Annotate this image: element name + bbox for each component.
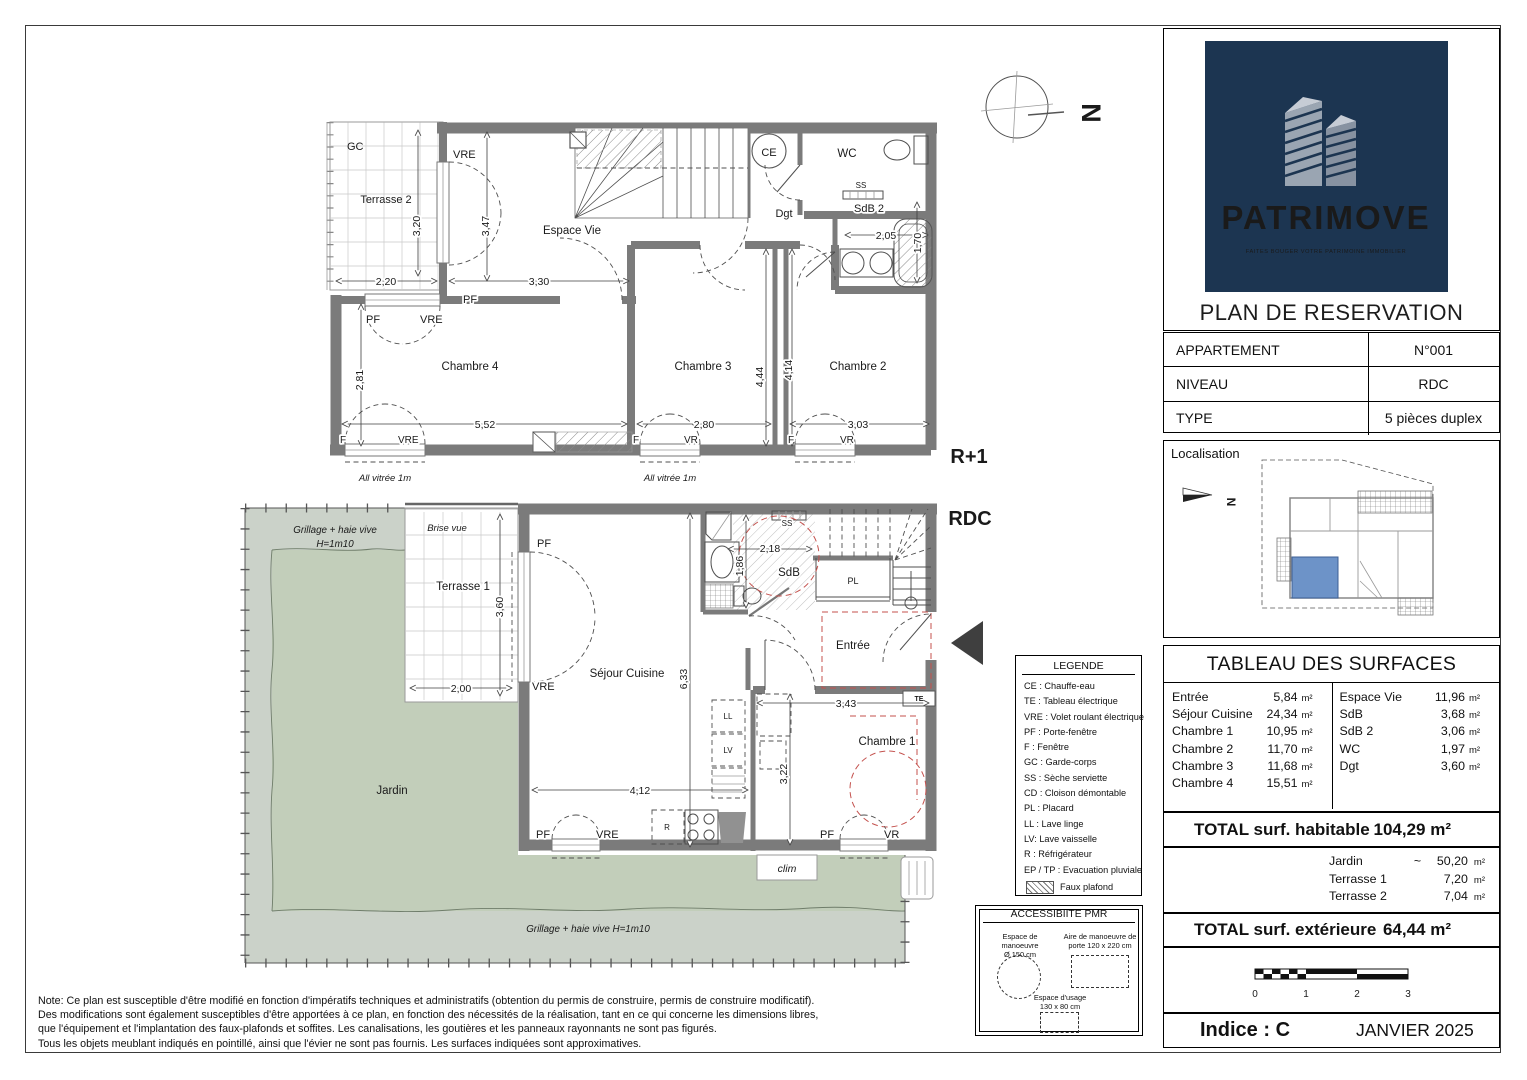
svg-text:2,80: 2,80 xyxy=(694,419,715,431)
svg-text:Entrée: Entrée xyxy=(836,640,870,652)
surface-value: 24,34 xyxy=(1256,707,1298,721)
surface-row: Dgt 3,60 m² xyxy=(1340,759,1492,776)
svg-text:VRE: VRE xyxy=(596,829,619,841)
exterior-name: Jardin xyxy=(1329,854,1414,868)
indice-box: Indice : C JANVIER 2025 xyxy=(1163,1013,1500,1048)
info-label: TYPE xyxy=(1164,410,1213,426)
legend-item: PF : Porte-fenêtre xyxy=(1024,725,1141,740)
notes: Note: Ce plan est susceptible d'être mod… xyxy=(38,994,838,1051)
svg-text:F: F xyxy=(340,435,346,446)
surface-row: SdB 2 3,06 m² xyxy=(1340,724,1492,741)
pmr-line: Espace de manoeuvre xyxy=(984,932,1056,950)
surface-unit: m² xyxy=(1298,727,1324,738)
date-label: JANVIER 2025 xyxy=(1356,1020,1474,1041)
surface-unit: m² xyxy=(1298,693,1324,704)
surface-row: Séjour Cuisine 24,34 m² xyxy=(1172,707,1324,724)
svg-text:PF: PF xyxy=(537,538,551,550)
plan-rdc: Grillage + haie viveH=1m10Brise vueTerra… xyxy=(245,504,992,963)
surfaces-box: TABLEAU DES SURFACES Entrée 5,84 m² Séjo… xyxy=(1163,645,1500,812)
svg-text:CE: CE xyxy=(761,147,776,159)
svg-text:R: R xyxy=(664,823,670,832)
legend-box: LEGENDE CE : Chauffe-eau TE : Tableau él… xyxy=(1015,655,1142,896)
patrimove-logo: PATRIMOVE FAITES BOUGER VOTRE PATRIMOINE… xyxy=(1205,41,1448,292)
surface-unit: m² xyxy=(1298,779,1324,790)
svg-text:VRE: VRE xyxy=(398,435,419,446)
r1-faux-plafond xyxy=(533,432,632,452)
north-arrow-icon xyxy=(1183,488,1212,495)
surface-value: 3,68 xyxy=(1423,707,1465,721)
svg-text:N: N xyxy=(1224,498,1238,507)
total-exterior-value: 64,44 m² xyxy=(1383,920,1499,940)
svg-text:Espace Vie: Espace Vie xyxy=(543,225,601,237)
svg-text:2,81: 2,81 xyxy=(354,370,366,391)
svg-text:SS: SS xyxy=(782,519,793,528)
surface-value: 1,97 xyxy=(1423,742,1465,756)
legend-item: TE : Tableau électrique xyxy=(1024,694,1141,709)
exterior-row: Jardin ~ 50,20 m² xyxy=(1329,854,1499,872)
svg-text:3: 3 xyxy=(1405,989,1411,1000)
pmr-line: 130 x 80 cm xyxy=(1022,1002,1098,1011)
svg-text:Chambre 3: Chambre 3 xyxy=(675,361,732,373)
svg-text:RDC: RDC xyxy=(948,508,991,530)
svg-text:SS: SS xyxy=(856,181,867,190)
svg-text:Terrasse 1: Terrasse 1 xyxy=(436,581,490,593)
exterior-name: Terrasse 1 xyxy=(1329,872,1414,886)
svg-text:Terrasse 2: Terrasse 2 xyxy=(360,194,411,206)
surface-unit: m² xyxy=(1465,710,1491,721)
svg-text:Dgt: Dgt xyxy=(775,208,792,220)
surface-value: 11,68 xyxy=(1256,759,1298,773)
legend-item: PL : Placard xyxy=(1024,801,1141,816)
surface-unit: m² xyxy=(1465,693,1491,704)
svg-text:clim: clim xyxy=(778,863,797,875)
svg-text:VR: VR xyxy=(840,435,854,446)
total-habitable-box: TOTAL surf. habitable 104,29 m² xyxy=(1163,812,1500,847)
info-row: APPARTEMENT N°001 xyxy=(1164,333,1499,367)
compass-label: N xyxy=(1076,103,1106,123)
surface-name: Séjour Cuisine xyxy=(1172,707,1256,721)
svg-text:0: 0 xyxy=(1252,989,1258,1000)
svg-text:F: F xyxy=(633,435,639,446)
pmr-box: ACCESSIBIITE PMR Espace de manoeuvre Ø 1… xyxy=(975,905,1143,1036)
svg-text:1,70: 1,70 xyxy=(912,233,924,254)
legend-item: CD : Cloison démontable xyxy=(1024,786,1141,801)
surface-row: WC 1,97 m² xyxy=(1340,742,1492,759)
plan-r1: GCTerrasse 23,202,20VRE3,47Espace Vie3,3… xyxy=(327,122,988,484)
surface-name: Dgt xyxy=(1340,759,1424,773)
svg-text:PL: PL xyxy=(847,576,858,586)
logo-brand-text: PATRIMOVE xyxy=(1221,199,1430,236)
surface-name: Chambre 3 xyxy=(1172,759,1256,773)
exterior-unit: m² xyxy=(1468,857,1499,868)
note-line: que l'équipement et l'implantation des f… xyxy=(38,1022,838,1036)
svg-text:1,86: 1,86 xyxy=(734,556,746,577)
plan-title: PLAN DE RESERVATION xyxy=(1164,300,1499,326)
legend-item: LV: Lave vaisselle xyxy=(1024,832,1141,847)
r1-terrasse2 xyxy=(327,122,443,290)
towel-warmer-icon xyxy=(843,191,883,199)
svg-text:Grillage + haie vive H=1m10: Grillage + haie vive H=1m10 xyxy=(526,924,650,935)
total-habitable-label: TOTAL surf. habitable xyxy=(1164,820,1370,840)
pmr-text-usage: Espace d'usage 130 x 80 cm xyxy=(1022,993,1098,1011)
info-value: RDC xyxy=(1368,367,1498,400)
svg-text:3,43: 3,43 xyxy=(836,698,857,710)
surface-unit: m² xyxy=(1465,727,1491,738)
svg-text:3,60: 3,60 xyxy=(494,597,506,618)
pmr-line: porte 120 x 220 cm xyxy=(1062,941,1138,950)
surface-name: Espace Vie xyxy=(1340,690,1424,704)
pmr-text-porte: Aire de manoeuvre de porte 120 x 220 cm xyxy=(1062,932,1138,950)
sink-icon xyxy=(842,252,864,274)
surface-row: Chambre 1 10,95 m² xyxy=(1172,724,1324,741)
svg-text:3,30: 3,30 xyxy=(529,276,550,288)
svg-text:VR: VR xyxy=(684,435,698,446)
surface-value: 11,70 xyxy=(1256,742,1298,756)
note-line: Note: Ce plan est susceptible d'être mod… xyxy=(38,994,838,1008)
svg-text:4,12: 4,12 xyxy=(630,785,651,797)
localisation-north-label: N xyxy=(1224,498,1238,507)
surface-row: Chambre 2 11,70 m² xyxy=(1172,742,1324,759)
pmr-line: Espace d'usage xyxy=(1022,993,1098,1002)
localisation-map: N xyxy=(1164,441,1498,636)
total-exterior-box: TOTAL surf. extérieure 64,44 m² xyxy=(1163,913,1500,947)
svg-text:4,44: 4,44 xyxy=(754,367,766,388)
svg-text:Séjour Cuisine: Séjour Cuisine xyxy=(590,668,665,680)
exterior-row: Terrasse 1 7,20 m² xyxy=(1329,872,1499,890)
surface-row: Entrée 5,84 m² xyxy=(1172,690,1324,707)
svg-text:2,20: 2,20 xyxy=(376,276,397,288)
legend-item: F : Fenêtre xyxy=(1024,740,1141,755)
surface-row: Chambre 4 15,51 m² xyxy=(1172,776,1324,793)
surface-value: 10,95 xyxy=(1256,724,1298,738)
svg-text:5,52: 5,52 xyxy=(475,419,496,431)
surface-unit: m² xyxy=(1298,762,1324,773)
svg-text:VRE: VRE xyxy=(420,314,443,326)
plan-sheet: .w{stroke:#7b7b7b;stroke-width:11;fill:n… xyxy=(0,0,1527,1080)
svg-text:3,20: 3,20 xyxy=(411,216,423,237)
surface-value: 3,06 xyxy=(1423,724,1465,738)
legend-item: GC : Garde-corps xyxy=(1024,755,1141,770)
svg-text:R+1: R+1 xyxy=(950,446,987,468)
scale-bar: 0123 xyxy=(1164,948,1498,1011)
total-exterior-label: TOTAL surf. extérieure xyxy=(1164,920,1376,940)
svg-text:LL: LL xyxy=(724,712,733,721)
svg-text:Chambre 2: Chambre 2 xyxy=(830,361,887,373)
svg-text:TE: TE xyxy=(915,696,924,703)
surface-name: SdB xyxy=(1340,707,1424,721)
surface-name: Entrée xyxy=(1172,690,1256,704)
surfaces-right-col: Espace Vie 11,96 m² SdB 3,68 m² SdB 2 3,… xyxy=(1332,683,1500,809)
svg-text:3,22: 3,22 xyxy=(778,764,790,785)
surface-row: Chambre 3 11,68 m² xyxy=(1172,759,1324,776)
svg-text:Brise vue: Brise vue xyxy=(427,523,467,534)
legend-item: R : Réfrigérateur xyxy=(1024,847,1141,862)
svg-text:LV: LV xyxy=(723,746,733,755)
surface-value: 5,84 xyxy=(1256,690,1298,704)
sink-icon xyxy=(870,252,892,274)
legend-item: VRE : Volet roulant électrique xyxy=(1024,710,1141,725)
svg-text:WC: WC xyxy=(837,148,856,160)
svg-text:VRE: VRE xyxy=(453,149,476,161)
legend-item: LL : Lave linge xyxy=(1024,817,1141,832)
svg-text:3,03: 3,03 xyxy=(848,419,869,431)
svg-text:6,33: 6,33 xyxy=(678,669,690,690)
info-label: APPARTEMENT xyxy=(1164,342,1280,358)
hatch-swatch-icon xyxy=(1026,881,1054,894)
pmr-line: Aire de manoeuvre de xyxy=(1062,932,1138,941)
svg-text:Chambre 1: Chambre 1 xyxy=(859,736,916,748)
pmr-rect-icon xyxy=(1071,955,1129,988)
surface-unit: m² xyxy=(1298,745,1324,756)
info-value: N°001 xyxy=(1368,333,1498,366)
exterior-unit: m² xyxy=(1468,875,1499,886)
exterior-surfaces-box: Jardin ~ 50,20 m² Terrasse 1 7,20 m² Ter… xyxy=(1163,847,1500,913)
svg-text:Chambre 4: Chambre 4 xyxy=(442,361,499,373)
svg-text:SdB: SdB xyxy=(778,567,800,579)
svg-text:PF: PF xyxy=(366,314,380,326)
exterior-name: Terrasse 2 xyxy=(1329,889,1414,903)
r1-stairs xyxy=(570,128,748,218)
surface-name: SdB 2 xyxy=(1340,724,1424,738)
surfaces-left-col: Entrée 5,84 m² Séjour Cuisine 24,34 m² C… xyxy=(1164,683,1332,809)
localisation-title: Localisation xyxy=(1171,446,1240,461)
svg-text:N: N xyxy=(1076,103,1106,123)
total-habitable-value: 104,29 m² xyxy=(1374,820,1500,840)
svg-text:VR: VR xyxy=(884,829,899,841)
svg-text:4,14: 4,14 xyxy=(783,360,795,381)
pmr-title: ACCESSIBIITE PMR xyxy=(983,909,1135,923)
approx-tilde: ~ xyxy=(1414,854,1429,868)
note-line: Tous les objets meublant indiqués en poi… xyxy=(38,1037,838,1051)
logo-buildings-icon: PATRIMOVE FAITES BOUGER VOTRE PATRIMOINE… xyxy=(1205,41,1448,292)
surface-name: Chambre 1 xyxy=(1172,724,1256,738)
svg-text:F: F xyxy=(788,435,794,446)
svg-text:Jardin: Jardin xyxy=(376,785,407,797)
surface-value: 3,60 xyxy=(1423,759,1465,773)
legend-item: CE : Chauffe-eau xyxy=(1024,679,1141,694)
svg-text:All vitrée 1m: All vitrée 1m xyxy=(358,473,411,484)
indice-label: Indice : C xyxy=(1164,1019,1290,1042)
legend-item: EP / TP : Evacuation pluviale xyxy=(1024,863,1141,878)
legend-title: LEGENDE xyxy=(1022,660,1135,675)
exterior-value: 50,20 xyxy=(1429,854,1468,868)
svg-text:1: 1 xyxy=(1303,989,1309,1000)
surface-name: Chambre 2 xyxy=(1172,742,1256,756)
exterior-row: Terrasse 2 7,04 m² xyxy=(1329,889,1499,907)
legend-item: SS : Sèche serviette xyxy=(1024,771,1141,786)
logo-tagline: FAITES BOUGER VOTRE PATRIMOINE IMMOBILIE… xyxy=(1246,249,1407,255)
scale-bar-box: 0123 xyxy=(1163,947,1500,1013)
legend-faux-plafond: Faux plafond xyxy=(1016,881,1141,894)
surface-row: SdB 3,68 m² xyxy=(1340,707,1492,724)
svg-text:2,00: 2,00 xyxy=(451,683,472,695)
faux-plafond-label: Faux plafond xyxy=(1060,882,1113,892)
svg-text:PF: PF xyxy=(820,829,834,841)
north-compass-icon xyxy=(981,71,1064,143)
surface-unit: m² xyxy=(1465,762,1491,773)
info-value: 5 pièces duplex xyxy=(1368,402,1498,435)
legend-items: CE : Chauffe-eau TE : Tableau électrique… xyxy=(1016,675,1141,878)
svg-text:PF: PF xyxy=(536,829,550,841)
surface-unit: m² xyxy=(1298,710,1324,721)
svg-text:SdB 2: SdB 2 xyxy=(854,203,884,215)
surface-row: Espace Vie 11,96 m² xyxy=(1340,690,1492,707)
note-line: Des modifications sont également suscept… xyxy=(38,1008,838,1022)
localisation-box: Localisation N xyxy=(1163,440,1500,638)
scale-tick-labels: 0123 xyxy=(1252,989,1411,1000)
exterior-unit: m² xyxy=(1468,892,1499,903)
svg-text:2,18: 2,18 xyxy=(760,543,781,555)
svg-text:PF: PF xyxy=(463,294,477,306)
surfaces-divider xyxy=(1332,683,1333,809)
svg-text:2: 2 xyxy=(1354,989,1360,1000)
svg-text:H=1m10: H=1m10 xyxy=(316,539,354,550)
entrance-arrow-icon xyxy=(951,621,983,665)
rdc-ep-box xyxy=(901,857,933,899)
svg-text:2,05: 2,05 xyxy=(876,230,897,242)
surface-name: WC xyxy=(1340,742,1424,756)
info-row: NIVEAU RDC xyxy=(1164,367,1499,401)
kitchen-sink-icon xyxy=(718,812,746,843)
svg-text:VRE: VRE xyxy=(532,681,555,693)
svg-text:Grillage + haie vive: Grillage + haie vive xyxy=(293,525,377,536)
info-label: NIVEAU xyxy=(1164,376,1228,392)
highlighted-unit xyxy=(1292,557,1338,598)
exterior-value: 7,20 xyxy=(1429,872,1468,886)
apartment-info-table: APPARTEMENT N°001 NIVEAU RDC TYPE 5 pièc… xyxy=(1163,332,1500,433)
pmr-small-rect-icon xyxy=(1040,1012,1079,1033)
exterior-value: 7,04 xyxy=(1429,889,1468,903)
logo-box: PATRIMOVE FAITES BOUGER VOTRE PATRIMOINE… xyxy=(1163,28,1500,331)
surface-name: Chambre 4 xyxy=(1172,776,1256,790)
surface-unit: m² xyxy=(1465,745,1491,756)
svg-text:GC: GC xyxy=(347,141,364,153)
surfaces-title: TABLEAU DES SURFACES xyxy=(1164,646,1499,683)
surface-value: 15,51 xyxy=(1256,776,1298,790)
info-row: TYPE 5 pièces duplex xyxy=(1164,402,1499,435)
svg-text:3,47: 3,47 xyxy=(480,216,492,237)
surface-value: 11,96 xyxy=(1423,690,1465,704)
svg-text:All vitrée 1m: All vitrée 1m xyxy=(643,473,696,484)
